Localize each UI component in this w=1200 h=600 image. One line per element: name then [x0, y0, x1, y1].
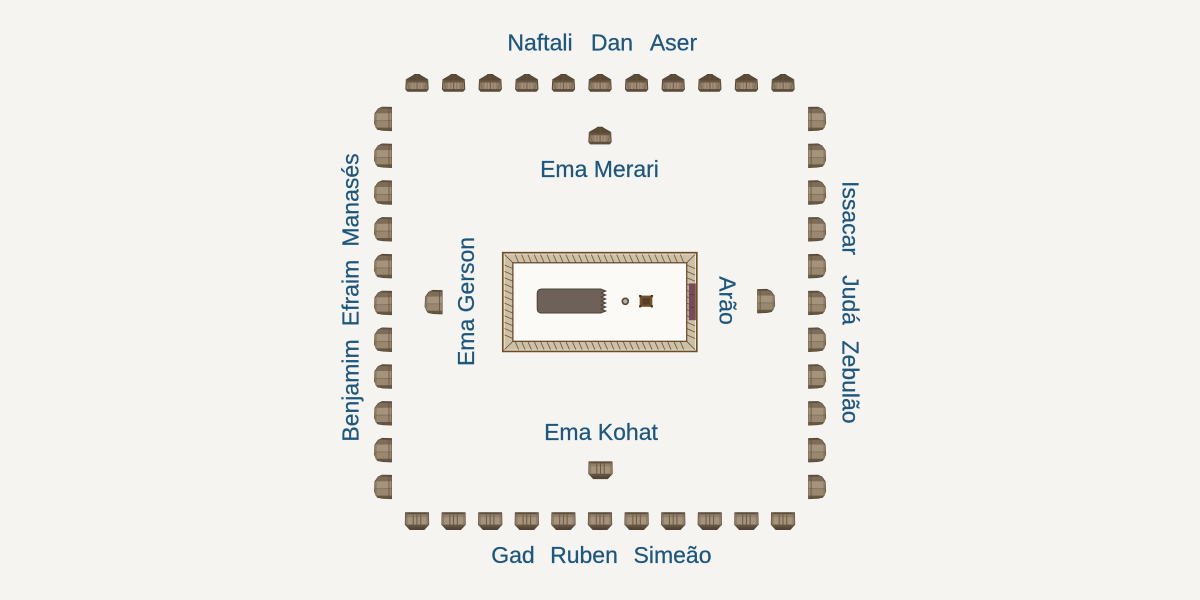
svg-text:Ema Kohat: Ema Kohat — [544, 419, 658, 445]
svg-text:Naftali: Naftali — [507, 30, 572, 56]
svg-text:Aser: Aser — [650, 30, 698, 56]
svg-text:Gad: Gad — [491, 542, 534, 568]
svg-text:Ema Gerson: Ema Gerson — [453, 237, 479, 366]
svg-text:Ema Merari: Ema Merari — [540, 156, 659, 182]
svg-text:Manasés: Manasés — [338, 153, 364, 246]
svg-text:Ruben: Ruben — [550, 542, 618, 568]
svg-text:Arão: Arão — [715, 276, 741, 325]
svg-text:Judá: Judá — [838, 275, 864, 325]
svg-text:Benjamim: Benjamim — [338, 339, 364, 441]
svg-text:Zebulão: Zebulão — [838, 340, 864, 423]
svg-text:Issacar: Issacar — [838, 181, 864, 255]
svg-text:Efraim: Efraim — [338, 260, 364, 326]
svg-text:Dan: Dan — [591, 30, 633, 56]
svg-text:Simeão: Simeão — [634, 542, 712, 568]
